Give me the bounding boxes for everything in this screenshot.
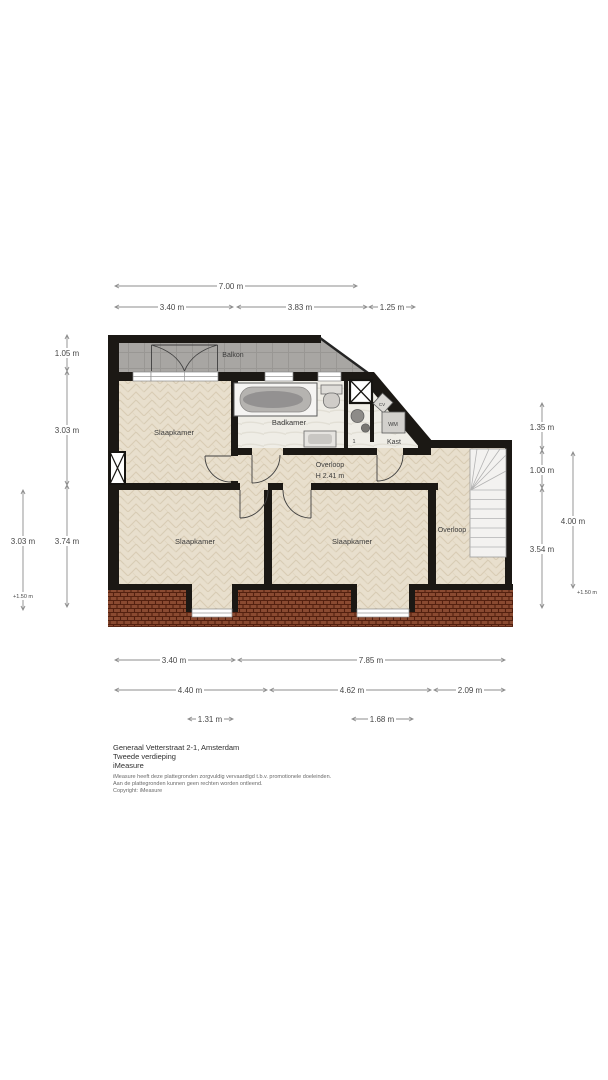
disclaimer-line-1: iMeasure heeft deze plattegronden zorgvu…	[113, 774, 331, 781]
svg-text:4.40 m: 4.40 m	[178, 686, 203, 695]
dim-bottom3-b: 1.68 m	[352, 714, 413, 724]
svg-text:3.03 m: 3.03 m	[55, 426, 80, 435]
dim-right-inner-c: 3.54 m	[528, 488, 556, 608]
dim-left-inner-a: 1.05 m	[53, 335, 81, 371]
label-balkon: Balkon	[222, 352, 244, 359]
svg-text:3.83 m: 3.83 m	[288, 303, 313, 312]
label-cv: CV	[379, 402, 385, 407]
dim-bottom2-a: 4.40 m	[115, 685, 267, 695]
svg-text:1.31 m: 1.31 m	[198, 715, 223, 724]
dim-right-inner-b: 1.00 m	[528, 450, 556, 488]
label-slaapkamer-left: Slaapkamer	[175, 537, 216, 546]
company-name: iMeasure	[113, 761, 331, 770]
dim-bottom1-b: 7.85 m	[238, 655, 505, 665]
geyser-small	[361, 424, 369, 432]
svg-text:3.74 m: 3.74 m	[55, 537, 80, 546]
dim-top-total: 7.00 m	[115, 281, 357, 291]
geyser-large	[351, 410, 364, 423]
dim-left-outer: 3.03 m +1.50 m	[9, 490, 37, 610]
floor-name: Tweede verdieping	[113, 752, 331, 761]
svg-text:2.09 m: 2.09 m	[458, 686, 483, 695]
toilet-bowl	[324, 393, 340, 408]
label-kast: Kast	[387, 439, 401, 446]
dim-right-outer: 4.00 m +1.50 m	[559, 452, 598, 596]
dim-left-inner-c: 3.74 m	[53, 485, 81, 607]
dim-bottom3-a: 1.31 m	[188, 714, 233, 724]
svg-text:4.00 m: 4.00 m	[561, 517, 586, 526]
svg-text:+1.50 m: +1.50 m	[577, 590, 597, 596]
svg-text:3.03 m: 3.03 m	[11, 537, 36, 546]
svg-text:3.40 m: 3.40 m	[160, 303, 185, 312]
dim-bottom2-b: 4.62 m	[270, 685, 431, 695]
label-door-mark: 1	[352, 439, 355, 445]
wall-landing-top	[418, 440, 512, 448]
svg-text:1.35 m: 1.35 m	[530, 423, 555, 432]
svg-text:4.62 m: 4.62 m	[340, 686, 365, 695]
bedrooms-bottom-floor	[113, 483, 438, 586]
floorplan-drawing: Balkon Slaapkamer Badkamer Overloop H 2.…	[0, 0, 608, 1080]
title-block: Generaal Vetterstraat 2-1, Amsterdam Twe…	[113, 743, 331, 794]
dim-top-a: 3.40 m	[115, 302, 233, 312]
svg-text:1.00 m: 1.00 m	[530, 466, 555, 475]
svg-text:+1.50 m: +1.50 m	[13, 594, 33, 600]
dim-top-c: 1.25 m	[369, 302, 415, 312]
label-overloop-height: H 2.41 m	[316, 473, 345, 480]
wall-top	[108, 335, 321, 343]
floorplan-canvas: Balkon Slaapkamer Badkamer Overloop H 2.…	[0, 0, 608, 1080]
svg-text:1.68 m: 1.68 m	[370, 715, 395, 724]
staircase	[470, 449, 506, 557]
dim-right-inner-a: 1.35 m	[528, 403, 556, 450]
label-overloop-right: Overloop	[438, 527, 467, 534]
svg-text:7.00 m: 7.00 m	[219, 282, 244, 291]
svg-text:1.05 m: 1.05 m	[55, 349, 80, 358]
dim-left-inner-b: 3.03 m	[53, 371, 81, 485]
dormer-left-floor	[192, 584, 232, 610]
dormer-right-floor	[357, 584, 409, 610]
roof-band	[108, 589, 513, 627]
svg-text:3.54 m: 3.54 m	[530, 545, 555, 554]
label-badkamer: Badkamer	[272, 418, 307, 427]
label-overloop: Overloop	[316, 462, 345, 469]
label-wm: WM	[388, 422, 398, 428]
address: Generaal Vetterstraat 2-1, Amsterdam	[113, 743, 331, 752]
disclaimer-line-3: Copyright: iMeasure	[113, 788, 331, 795]
dim-top-b: 3.83 m	[237, 302, 367, 312]
dim-bottom2-c: 2.09 m	[434, 685, 505, 695]
label-slaapkamer-top: Slaapkamer	[154, 428, 195, 437]
svg-text:3.40 m: 3.40 m	[162, 656, 187, 665]
disclaimer-line-2: Aan de plattegronden kunnen geen rechten…	[113, 781, 331, 788]
dim-bottom1-a: 3.40 m	[115, 655, 235, 665]
svg-text:7.85 m: 7.85 m	[359, 656, 384, 665]
label-slaapkamer-mid: Slaapkamer	[332, 537, 373, 546]
svg-text:1.25 m: 1.25 m	[380, 303, 405, 312]
